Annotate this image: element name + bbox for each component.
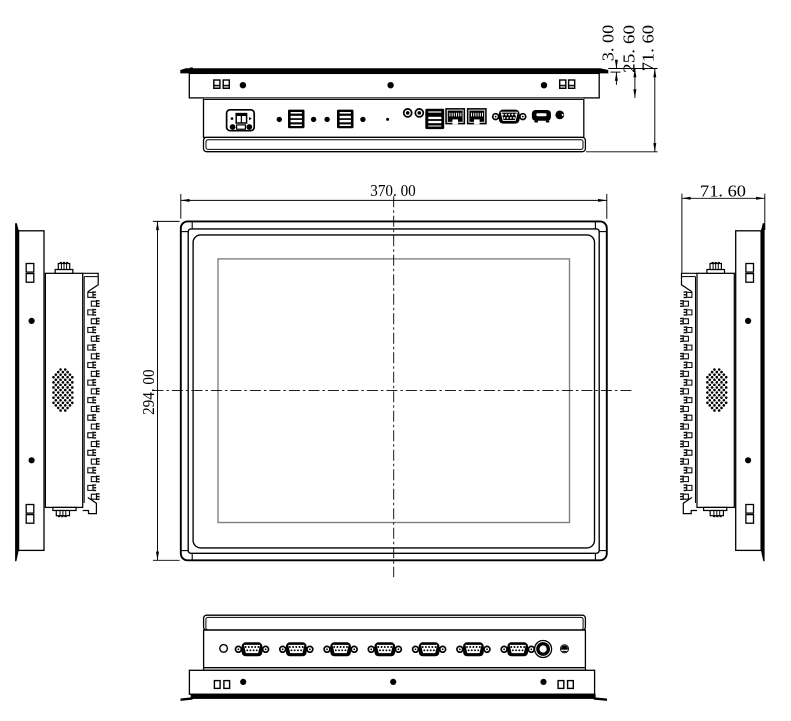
svg-text:25. 60: 25. 60 — [620, 25, 639, 73]
svg-text:370. 00: 370. 00 — [370, 181, 416, 200]
svg-text:71. 60: 71. 60 — [639, 25, 658, 72]
svg-text:3. 00: 3. 00 — [599, 25, 618, 62]
svg-text:71. 60: 71. 60 — [700, 182, 746, 201]
svg-text:294. 00: 294. 00 — [139, 369, 158, 415]
